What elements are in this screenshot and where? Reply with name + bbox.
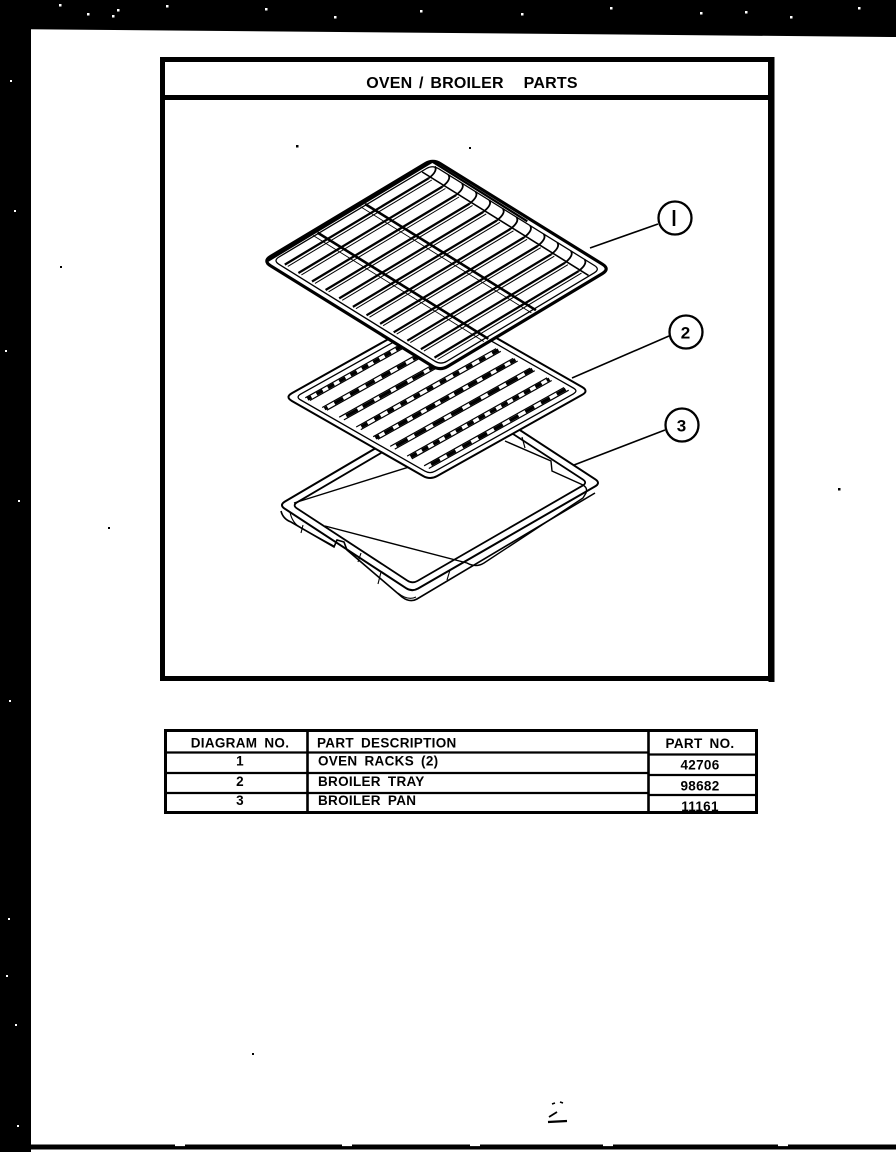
svg-text:OVEN RACKS (2): OVEN RACKS (2) — [318, 754, 438, 769]
svg-text:DIAGRAM NO.: DIAGRAM NO. — [191, 736, 290, 751]
svg-text:PART NO.: PART NO. — [666, 736, 735, 751]
svg-text:42706: 42706 — [680, 758, 719, 773]
svg-text:BROILER TRAY: BROILER TRAY — [318, 774, 425, 789]
svg-text:PART DESCRIPTION: PART DESCRIPTION — [317, 736, 457, 751]
svg-text:OVEN / BROILER PARTS: OVEN / BROILER PARTS — [366, 75, 578, 92]
svg-text:2: 2 — [236, 774, 244, 789]
svg-text:1: 1 — [236, 754, 244, 769]
svg-text:11161: 11161 — [681, 799, 719, 814]
svg-text:3: 3 — [677, 417, 686, 436]
svg-text:3: 3 — [236, 793, 244, 808]
svg-text:BROILER PAN: BROILER PAN — [318, 793, 416, 808]
svg-text:98682: 98682 — [680, 779, 719, 794]
svg-text:2: 2 — [681, 324, 690, 343]
